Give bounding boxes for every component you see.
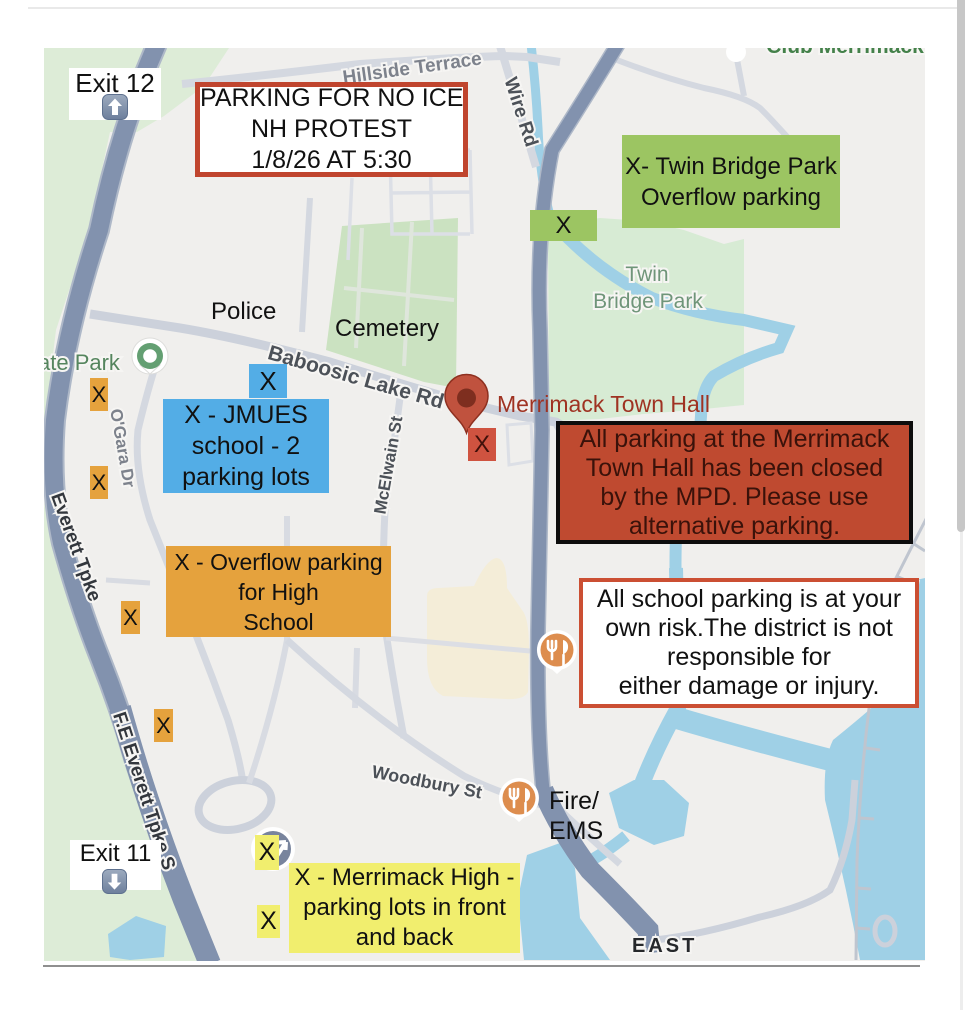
svg-text:EAST: EAST — [632, 935, 697, 957]
svg-text:McElwain St: McElwain St — [371, 414, 407, 515]
svg-text:Club Merrimack: Club Merrimack — [766, 48, 924, 58]
svg-text:Bridge Park: Bridge Park — [593, 290, 703, 313]
svg-text:Woodbury St: Woodbury St — [370, 762, 483, 803]
svg-text:Twin: Twin — [625, 263, 668, 286]
svg-text:ate Park: ate Park — [44, 350, 121, 375]
